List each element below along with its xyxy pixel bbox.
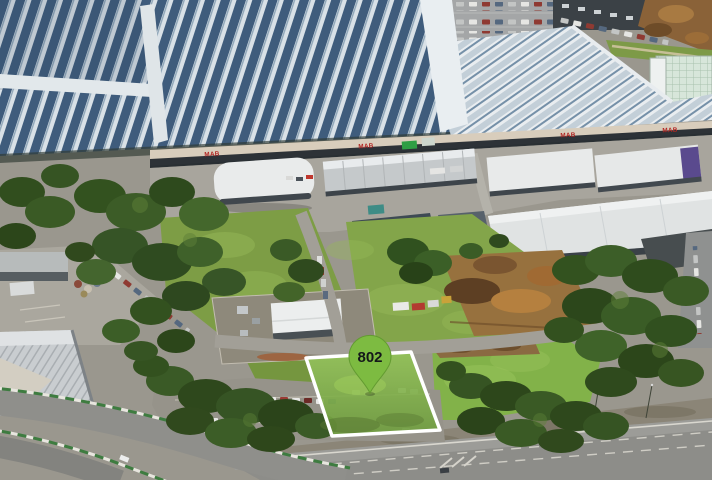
factory-roof-left xyxy=(0,0,468,156)
green-sign xyxy=(402,141,418,150)
teal-container xyxy=(368,204,385,214)
mab-sign: MAB xyxy=(662,127,678,135)
pin-label: 802 xyxy=(357,349,382,366)
aerial-photo: MAB MAB MAB MAB xyxy=(0,0,712,480)
light-sign xyxy=(421,137,435,146)
screenshot: MAB MAB MAB MAB xyxy=(0,0,712,480)
mab-sign: MAB xyxy=(560,132,576,140)
mab-sign: MAB xyxy=(358,142,374,150)
mab-sign: MAB xyxy=(204,150,220,158)
